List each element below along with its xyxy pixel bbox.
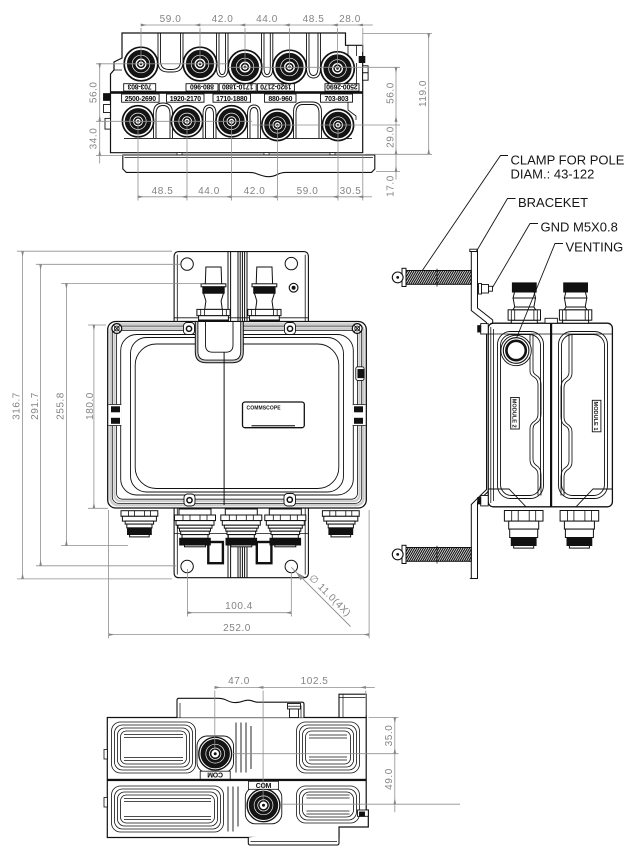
svg-text:CLAMP FOR POLE: CLAMP FOR POLE [511, 152, 625, 167]
svg-text:255.8: 255.8 [55, 392, 66, 420]
svg-text:42.0: 42.0 [244, 186, 266, 197]
svg-text:COM: COM [207, 770, 223, 777]
svg-text:252.0: 252.0 [223, 623, 251, 634]
svg-text:VENTING: VENTING [566, 240, 624, 255]
svg-text:47.0: 47.0 [228, 676, 250, 687]
svg-text:49.0: 49.0 [384, 768, 395, 790]
svg-text:29.0: 29.0 [385, 126, 396, 148]
svg-text:1710-1880: 1710-1880 [216, 96, 248, 103]
svg-text:44.0: 44.0 [198, 186, 220, 197]
svg-text:34.0: 34.0 [89, 128, 100, 150]
svg-text:35.0: 35.0 [384, 725, 395, 747]
svg-text:703-803: 703-803 [127, 83, 151, 90]
svg-text:880-960: 880-960 [268, 96, 292, 103]
svg-text:880-960: 880-960 [190, 83, 214, 90]
svg-text:59.0: 59.0 [297, 186, 319, 197]
svg-text:17.0: 17.0 [385, 175, 396, 197]
svg-text:MODULE 2: MODULE 2 [510, 399, 516, 428]
svg-text:180.0: 180.0 [85, 392, 96, 420]
svg-text:28.0: 28.0 [339, 14, 361, 25]
svg-text:2500-2690: 2500-2690 [326, 83, 358, 90]
svg-text:291.7: 291.7 [30, 392, 41, 420]
svg-text:102.5: 102.5 [301, 676, 329, 687]
svg-text:119.0: 119.0 [418, 80, 429, 107]
svg-text:48.5: 48.5 [152, 186, 174, 197]
svg-text:MODULE 1: MODULE 1 [592, 402, 598, 431]
svg-text:44.0: 44.0 [256, 14, 278, 25]
svg-text:42.0: 42.0 [212, 14, 234, 25]
svg-text:59.0: 59.0 [160, 14, 182, 25]
svg-text:BRACEKET: BRACEKET [518, 195, 588, 210]
svg-text:COMMSCOPE: COMMSCOPE [247, 406, 282, 412]
svg-text:1710-1880: 1710-1880 [222, 83, 254, 90]
svg-text:48.5: 48.5 [303, 14, 325, 25]
svg-text:COM: COM [256, 783, 272, 790]
svg-text:1920-2170: 1920-2170 [170, 96, 202, 103]
svg-text:703-803: 703-803 [325, 96, 349, 103]
svg-text:316.7: 316.7 [12, 392, 23, 420]
svg-text:56.0: 56.0 [385, 82, 396, 104]
svg-text:56.0: 56.0 [89, 81, 100, 103]
svg-text:100.4: 100.4 [225, 601, 253, 612]
svg-text:GND M5X0.8: GND M5X0.8 [541, 220, 618, 235]
svg-text:1920-2170: 1920-2170 [260, 83, 292, 90]
svg-text:2500-2690: 2500-2690 [125, 96, 157, 103]
svg-text:DIAM.: 43-122: DIAM.: 43-122 [511, 167, 595, 182]
svg-text:30.5: 30.5 [340, 186, 362, 197]
